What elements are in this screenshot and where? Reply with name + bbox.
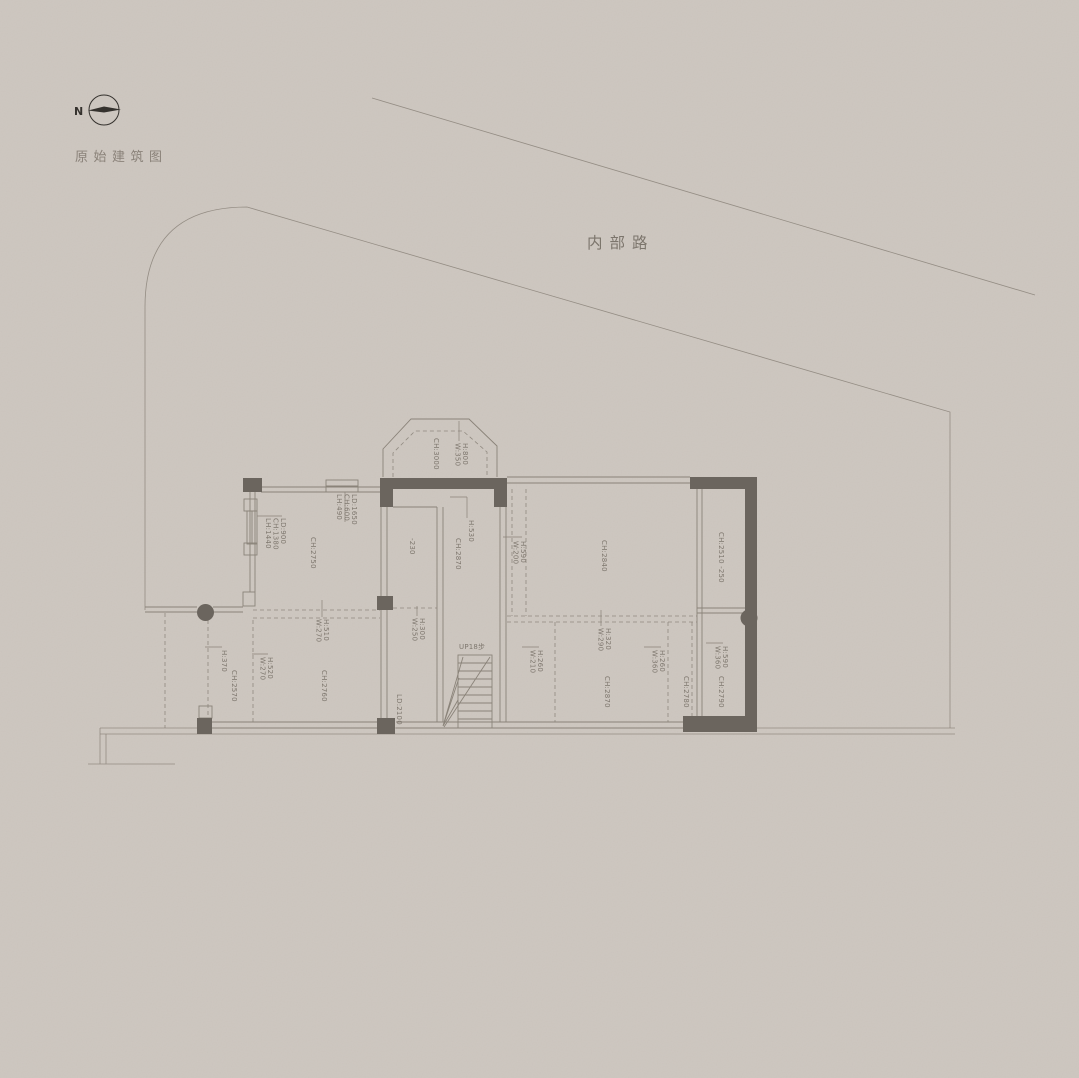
plan-canvas: N 原始建筑图 内部路 CH:2750LD:900CH:1380LH:1440L… <box>0 0 1079 1078</box>
annotation-group: UP18步 <box>459 643 485 651</box>
annotation-label: W:350 <box>454 443 462 466</box>
annotation-group: H:510W:270 <box>315 619 331 642</box>
road-label: 内部路 <box>587 234 655 252</box>
annotation-group: CH:2790 <box>717 676 725 708</box>
annotation-group: H:800W:350 <box>454 443 470 466</box>
annotation-group: -230 <box>408 538 416 555</box>
annotation-label: CH:2510 -250 <box>717 532 725 583</box>
annotation-label: LH:490 <box>335 494 343 520</box>
north-label: N <box>74 105 83 118</box>
annotation-label: CH:2570 <box>230 670 238 702</box>
annotation-group: CH:2870 <box>603 676 611 708</box>
annotation-group: H:370 <box>220 650 228 672</box>
annotation-group: H:530 <box>467 520 475 542</box>
annotation-group: H:260W:210 <box>529 650 545 673</box>
annotation-label: W:360 <box>651 650 659 673</box>
annotation-group: CH:2780 <box>682 676 690 708</box>
annotation-group: CH:2840 <box>600 540 608 572</box>
annotation-label: W:360 <box>714 646 722 669</box>
annotation-label: CH:2870 <box>603 676 611 708</box>
annotation-label: W:270 <box>259 657 267 680</box>
annotation-label: -230 <box>408 538 416 555</box>
annotation-label: W:290 <box>597 628 605 651</box>
annotation-label: CH:2790 <box>717 676 725 708</box>
annotation-label: CH:2760 <box>320 670 328 702</box>
annotation-group: LD:2100 <box>395 694 403 725</box>
annotation-label: H:530 <box>467 520 475 542</box>
annotation-group: H:520W:270 <box>259 657 275 680</box>
annotation-group: CH:2570 <box>230 670 238 702</box>
annotation-group: CH:2870 <box>454 538 462 570</box>
annotation-group: CH:2510 -250 <box>717 532 725 583</box>
drawing-title: 原始建筑图 <box>75 149 168 165</box>
annotation-group: H:590W:200 <box>512 541 528 564</box>
annotation-label: W:210 <box>529 650 537 673</box>
annotation-group: H:320W:290 <box>597 628 613 651</box>
annotation-label: CH:2870 <box>454 538 462 570</box>
annotation-label: CH:2780 <box>682 676 690 708</box>
annotation-group: CH:2760 <box>320 670 328 702</box>
annotation-group: CH:2750 <box>309 537 317 569</box>
annotation-label: CH:2840 <box>600 540 608 572</box>
round-column <box>741 610 758 627</box>
annotation-label: UP18步 <box>459 643 485 651</box>
round-column <box>197 604 214 621</box>
annotation-label: LH:1440 <box>264 518 272 549</box>
annotation-label: CH:3000 <box>432 438 440 470</box>
annotation-label: W:200 <box>512 541 520 564</box>
annotation-group: H:300W:250 <box>411 618 427 641</box>
annotation-group: CH:3000 <box>432 438 440 470</box>
annotation-group: H:590W:360 <box>714 646 730 669</box>
annotation-label: W:270 <box>315 619 323 642</box>
annotation-label: H:370 <box>220 650 228 672</box>
annotation-label: CH:2750 <box>309 537 317 569</box>
floor-plan-drawing: N 原始建筑图 内部路 CH:2750LD:900CH:1380LH:1440L… <box>0 0 1079 1078</box>
annotation-label: W:250 <box>411 618 419 641</box>
annotation-label: LD:2100 <box>395 694 403 725</box>
annotation-group: H:260W:360 <box>651 650 667 673</box>
